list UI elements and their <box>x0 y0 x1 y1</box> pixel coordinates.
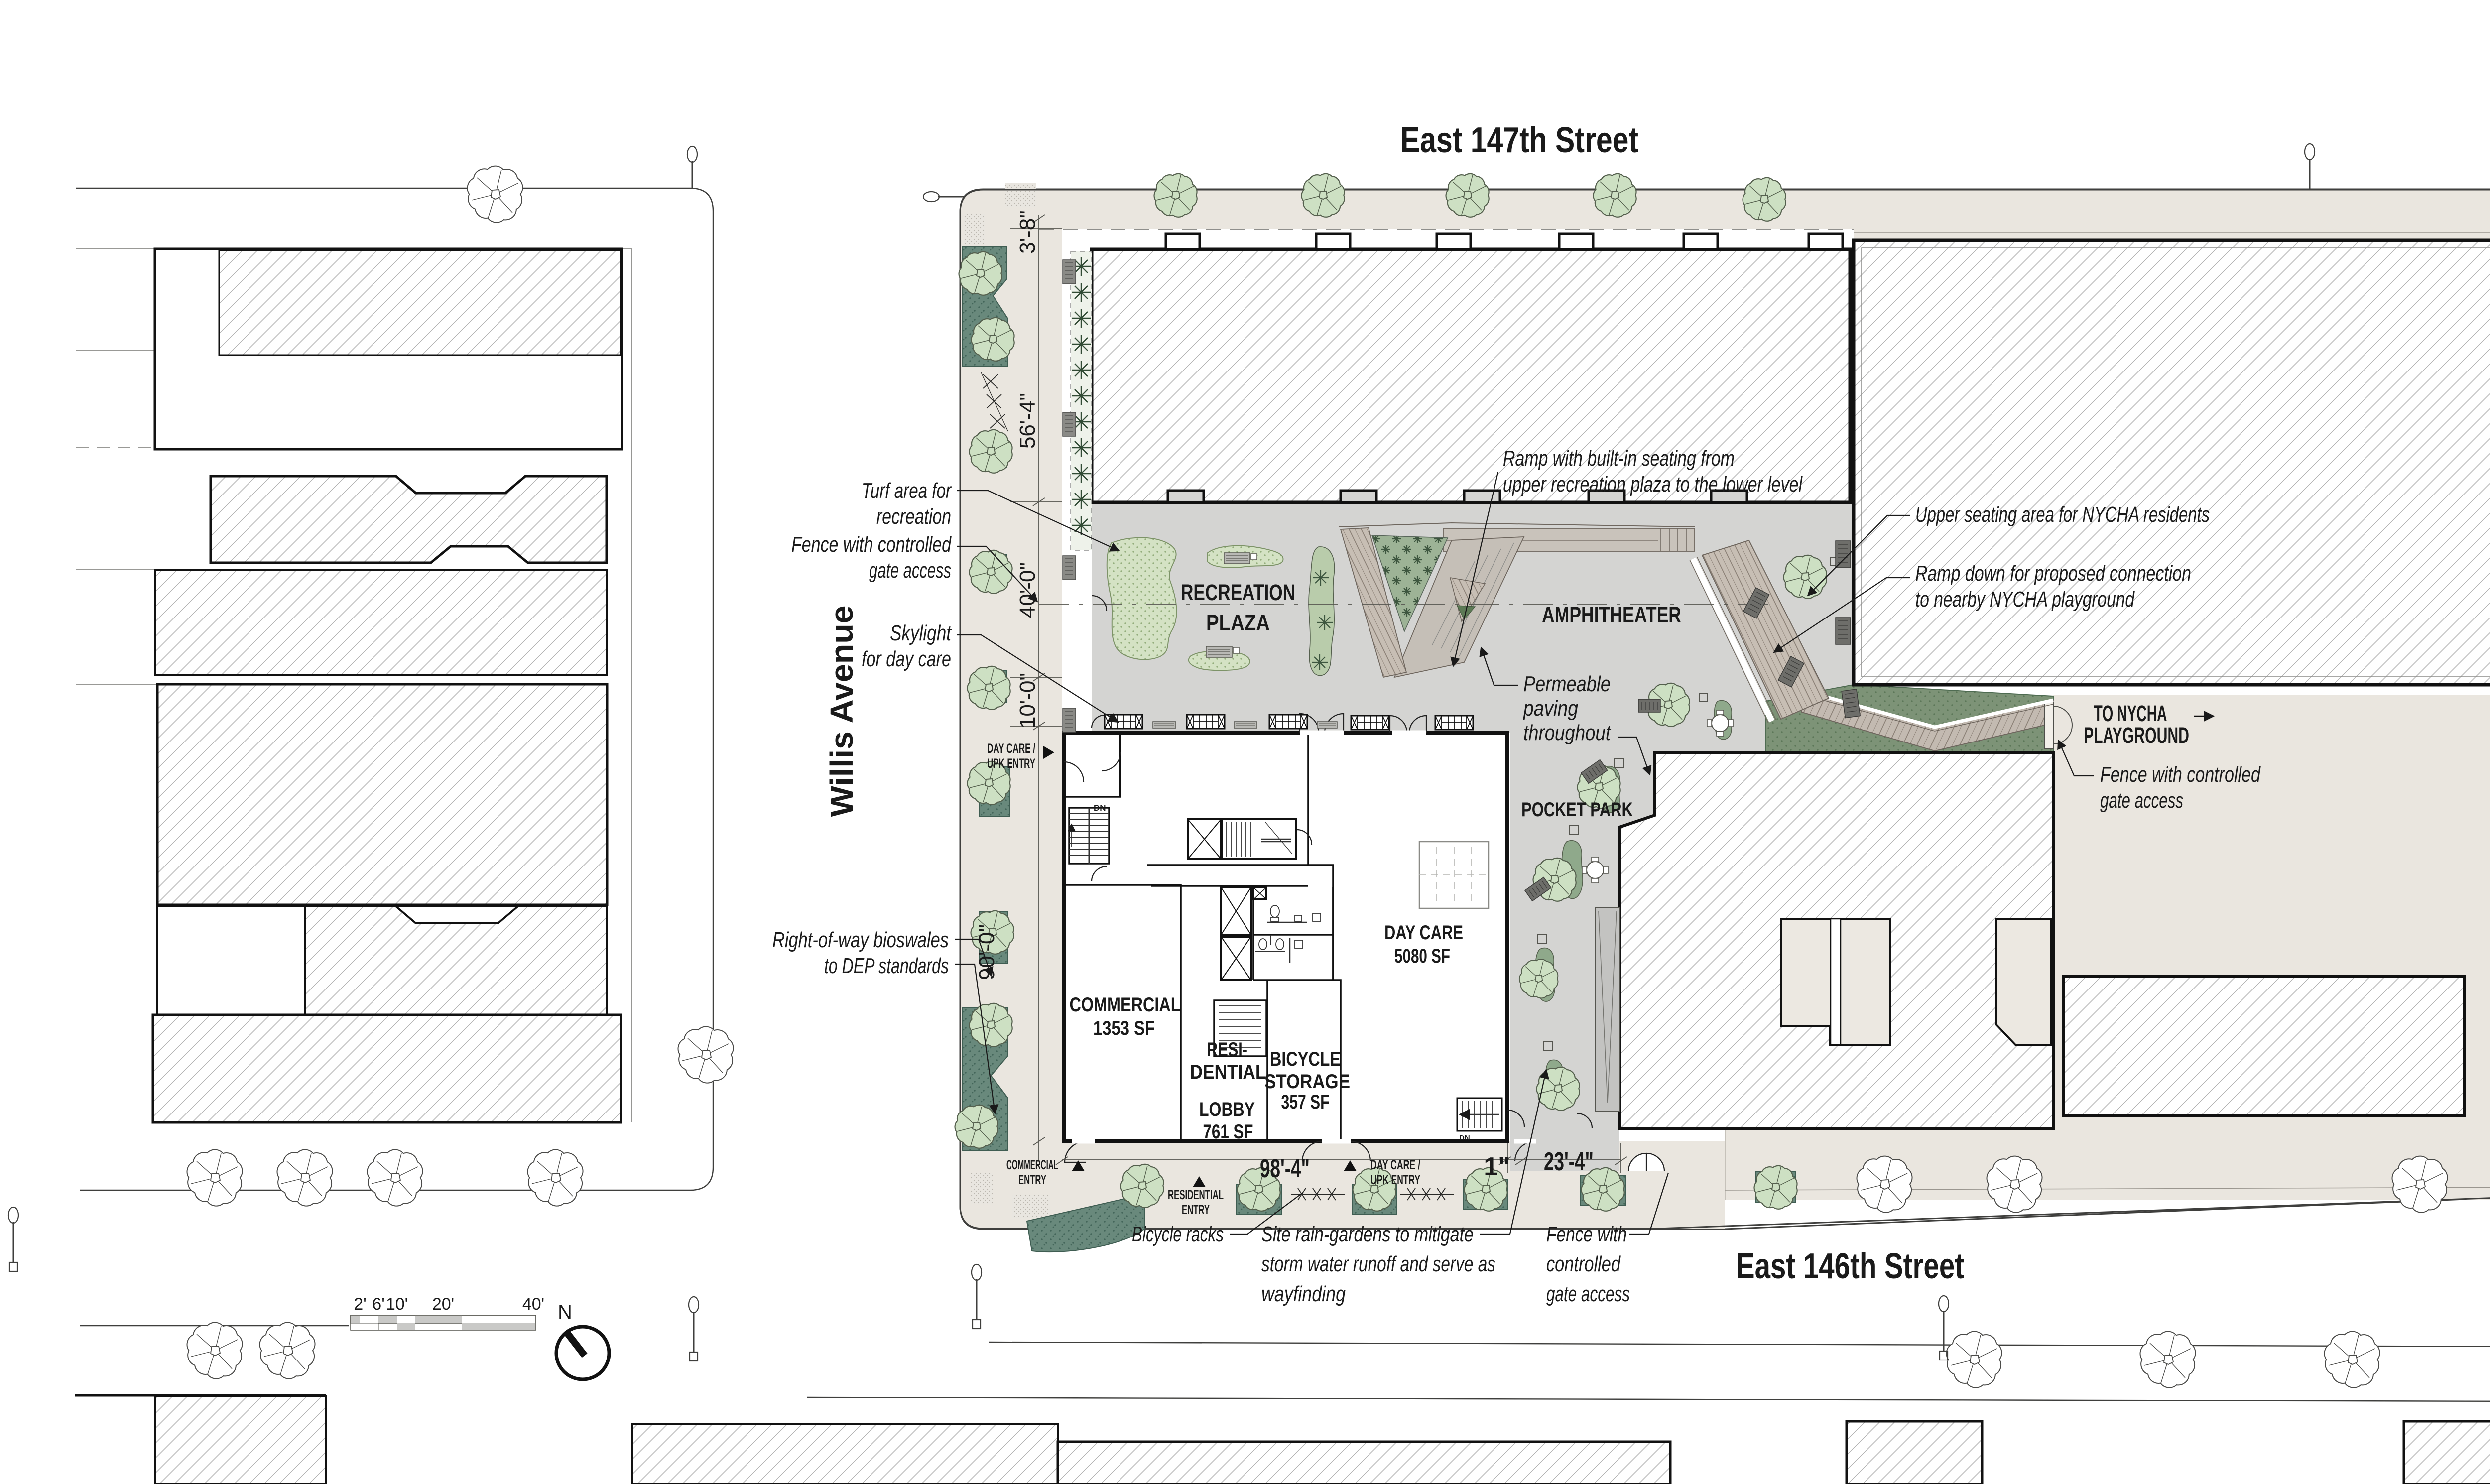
svg-text:STORAGE: STORAGE <box>1264 1071 1350 1093</box>
svg-text:gate access: gate access <box>2100 788 2183 813</box>
svg-text:Fence with: Fence with <box>1546 1222 1627 1246</box>
svg-text:Skylight: Skylight <box>890 621 952 645</box>
svg-text:23'-4": 23'-4" <box>1544 1147 1594 1176</box>
svg-text:2': 2' <box>354 1295 366 1314</box>
svg-text:98'-4": 98'-4" <box>1260 1154 1310 1183</box>
svg-text:BICYCLE: BICYCLE <box>1270 1048 1341 1070</box>
svg-text:6': 6' <box>372 1295 384 1314</box>
svg-text:Ramp down for proposed connect: Ramp down for proposed connection <box>1915 561 2191 586</box>
svg-text:N: N <box>558 1301 572 1323</box>
svg-text:40'-0": 40'-0" <box>1015 562 1040 618</box>
svg-text:RECREATION: RECREATION <box>1181 580 1295 605</box>
svg-text:5080 SF: 5080 SF <box>1394 945 1450 967</box>
svg-text:Turf area for: Turf area for <box>862 479 952 503</box>
svg-text:UPK ENTRY: UPK ENTRY <box>1370 1172 1420 1187</box>
svg-text:gate access: gate access <box>869 558 951 583</box>
svg-text:COMMERCIAL: COMMERCIAL <box>1070 994 1181 1016</box>
svg-text:POCKET PARK: POCKET PARK <box>1521 799 1633 821</box>
svg-text:DAY CARE: DAY CARE <box>1384 922 1463 944</box>
svg-text:DN: DN <box>1459 1134 1470 1142</box>
svg-text:COMMERCIAL: COMMERCIAL <box>1006 1157 1058 1172</box>
svg-text:UPK ENTRY: UPK ENTRY <box>987 756 1035 771</box>
svg-text:Upper seating area for NYCHA r: Upper seating area for NYCHA residents <box>1915 502 2210 527</box>
svg-text:recreation: recreation <box>876 504 951 529</box>
svg-text:LOBBY: LOBBY <box>1199 1099 1255 1120</box>
svg-text:761 SF: 761 SF <box>1203 1121 1253 1143</box>
svg-text:DENTIAL: DENTIAL <box>1190 1061 1266 1083</box>
svg-text:10': 10' <box>386 1295 408 1314</box>
svg-text:RESI-: RESI- <box>1207 1039 1247 1061</box>
svg-text:Right-of-way bioswales: Right-of-way bioswales <box>772 928 949 952</box>
svg-text:DN: DN <box>1094 803 1106 813</box>
svg-text:storm water runoff and serve a: storm water runoff and serve as <box>1261 1252 1495 1276</box>
svg-text:20': 20' <box>432 1295 454 1314</box>
svg-text:ENTRY: ENTRY <box>1018 1172 1046 1187</box>
svg-text:ENTRY: ENTRY <box>1182 1202 1210 1217</box>
svg-text:Willis Avenue: Willis Avenue <box>824 606 860 817</box>
svg-text:DAY CARE /: DAY CARE / <box>987 741 1035 756</box>
svg-text:DAY CARE /: DAY CARE / <box>1370 1157 1420 1172</box>
svg-text:Ramp with built-in seating fro: Ramp with built-in seating from <box>1503 446 1735 471</box>
svg-text:PLAYGROUND: PLAYGROUND <box>2084 723 2189 748</box>
svg-text:Fence with controlled: Fence with controlled <box>791 532 952 557</box>
svg-text:upper recreation plaza to the: upper recreation plaza to the lower leve… <box>1503 472 1803 496</box>
svg-text:3'-8": 3'-8" <box>1015 210 1040 254</box>
svg-text:East 146th Street: East 146th Street <box>1736 1246 1964 1286</box>
svg-text:East 147th Street: East 147th Street <box>1400 121 1638 160</box>
svg-text:to nearby NYCHA playground: to nearby NYCHA playground <box>1915 587 2135 612</box>
svg-text:throughout: throughout <box>1523 721 1611 745</box>
svg-text:90'-0": 90'-0" <box>975 924 999 980</box>
svg-text:AMPHITHEATER: AMPHITHEATER <box>1542 602 1681 627</box>
svg-text:40': 40' <box>522 1295 544 1314</box>
svg-text:RESIDENTIAL: RESIDENTIAL <box>1168 1187 1224 1202</box>
svg-text:wayfinding: wayfinding <box>1261 1282 1346 1306</box>
svg-text:1": 1" <box>1484 1152 1510 1181</box>
svg-text:Fence with controlled: Fence with controlled <box>2100 762 2261 787</box>
svg-text:Bicycle racks: Bicycle racks <box>1132 1222 1224 1246</box>
svg-text:controlled: controlled <box>1546 1252 1621 1276</box>
svg-text:PLAZA: PLAZA <box>1206 610 1270 635</box>
svg-text:paving: paving <box>1522 696 1578 721</box>
svg-text:gate access: gate access <box>1546 1282 1630 1306</box>
svg-text:for day care: for day care <box>862 647 951 671</box>
svg-text:10'-0": 10'-0" <box>1015 673 1040 729</box>
svg-text:Site rain-gardens to mitigate: Site rain-gardens to mitigate <box>1261 1222 1474 1246</box>
svg-text:1353 SF: 1353 SF <box>1093 1017 1155 1039</box>
svg-text:to DEP standards: to DEP standards <box>824 954 949 978</box>
svg-text:357 SF: 357 SF <box>1281 1091 1330 1113</box>
svg-text:Permeable: Permeable <box>1523 672 1611 696</box>
svg-text:56'-4": 56'-4" <box>1015 393 1040 449</box>
